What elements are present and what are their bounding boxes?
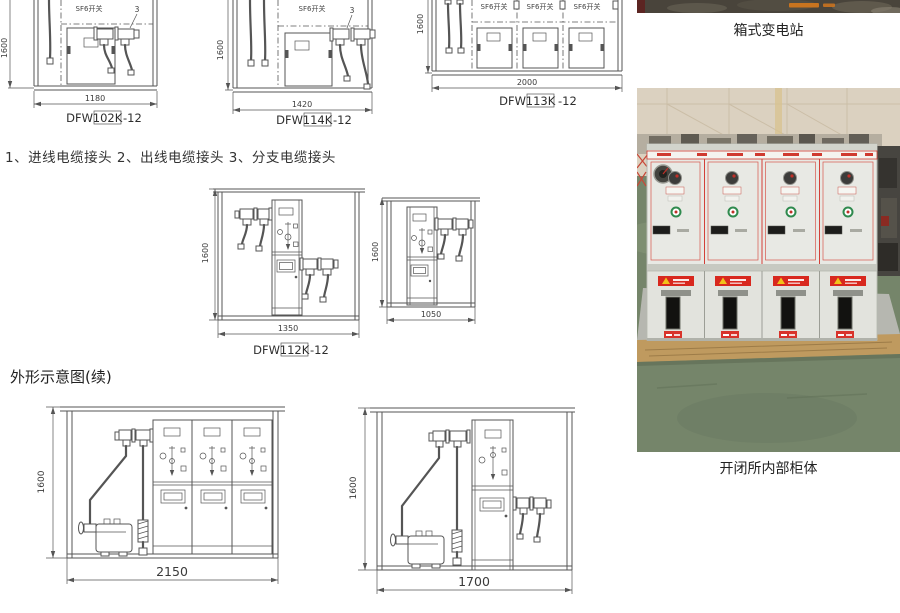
switch-unit <box>407 207 437 305</box>
height-dim-text: 1600 <box>416 14 425 34</box>
sf6-switch-label-3: SF6开关 <box>574 2 601 11</box>
switch-unit <box>472 420 513 570</box>
model-boxed: 113K <box>526 94 556 108</box>
height-dimension: 1600 <box>416 0 432 73</box>
drawing-dfw102k: 3 SF6开关 1600 1180 DFW 102K -12 <box>0 0 185 130</box>
cable-connectors-left <box>235 208 272 251</box>
pointer-label: 3 <box>135 5 140 14</box>
model-boxed: 112K <box>280 343 310 357</box>
photo-substation-bottom-edge <box>637 0 900 13</box>
unit-front-2 <box>200 428 227 509</box>
height-dimension: 1600 <box>201 189 218 320</box>
height-dimension: 1600 <box>0 0 34 88</box>
cable-connectors-right <box>300 258 338 302</box>
width-dimension: 1420 <box>233 92 372 114</box>
cabinet-outline <box>382 198 480 307</box>
cable-connectors-right <box>435 218 473 261</box>
drawing-1050-cabinet: 1600 1050 <box>372 190 490 335</box>
straight-cable-with-joint <box>452 447 462 565</box>
unit-front-1 <box>160 428 187 509</box>
height-dim-text: 1600 <box>201 243 210 263</box>
photo-maroon-edge <box>637 0 645 13</box>
model-boxed: 114K <box>303 113 333 127</box>
cable-incoming <box>248 0 268 66</box>
width-dimension: 2000 <box>432 75 622 92</box>
height-dim-text: 1600 <box>372 242 380 262</box>
model-suffix: -12 <box>333 113 352 127</box>
model-boxed: 102K <box>93 111 123 125</box>
width-dim-text: 2150 <box>156 564 188 579</box>
height-dimension: 1600 <box>37 407 67 558</box>
sf6-switch-label-1: SF6开关 <box>481 2 508 11</box>
cable-terminal-assembly <box>115 429 153 446</box>
pointer-leader <box>130 14 137 28</box>
photo-right-equipment <box>877 146 900 276</box>
main-photo-caption: 开闭所内部柜体 <box>637 458 900 478</box>
width-dimension: 1180 <box>34 91 157 108</box>
photo-cabinet-interior <box>637 88 900 452</box>
height-dimension: 1600 <box>372 198 387 307</box>
drawing-2150-cabinet: 1600 2150 <box>30 398 330 598</box>
cable-connectors <box>94 27 139 75</box>
cable-incoming <box>47 0 53 64</box>
width-dimension: 1700 <box>377 570 572 594</box>
model-prefix: DFW <box>253 343 280 357</box>
cable-incoming <box>445 0 464 53</box>
model-caption: DFW 102K -12 <box>66 111 142 125</box>
sf6-switch-label: SF6开关 <box>299 4 326 13</box>
model-caption: DFW 113K -12 <box>499 94 577 108</box>
straight-cable-with-joint <box>138 446 148 555</box>
sf6-switch-label: SF6开关 <box>76 4 103 13</box>
pointer-label: 3 <box>350 6 355 15</box>
model-suffix: -12 <box>558 94 577 108</box>
width-dimension: 2150 <box>67 558 278 584</box>
model-prefix: DFW <box>66 111 93 125</box>
sf6-switch-label-2: SF6开关 <box>527 2 554 11</box>
unit-front-3 <box>240 428 267 509</box>
width-dim-text: 1700 <box>458 574 490 589</box>
model-suffix: -12 <box>123 111 142 125</box>
drawing-dfw114k: 3 SF6开关 1600 1420 DFW 114K -12 <box>192 0 392 132</box>
drawing-dfw112k: 1600 1350 DFW 112K -12 <box>195 180 380 380</box>
switch-units <box>153 420 272 554</box>
drawing-1700-cabinet: 1600 1700 <box>340 398 625 610</box>
model-suffix: -12 <box>310 343 329 357</box>
photo-switchgear-cabinet <box>647 144 877 341</box>
section-title: 外形示意图(续) <box>10 366 112 387</box>
width-dimension: 1350 <box>218 320 359 338</box>
cable-connectors-right <box>513 497 551 542</box>
width-dimension: 1050 <box>387 307 475 324</box>
model-prefix: DFW <box>276 113 303 127</box>
bent-cable-to-transformer <box>79 446 127 534</box>
width-dim-text: 1180 <box>85 94 105 103</box>
height-dim-text: 1600 <box>349 476 359 499</box>
cable-legend-note: 1、进线电缆接头 2、出线电缆接头 3、分支电缆接头 <box>5 146 336 166</box>
cabinet-outline <box>213 189 365 320</box>
height-dim-text: 1600 <box>216 40 225 60</box>
width-dim-text: 2000 <box>517 78 537 87</box>
height-dimension: 1600 <box>349 408 377 570</box>
drawing-dfw113k: SF6开关 SF6开关 SF6开关 1600 2000 DFW <box>405 0 640 114</box>
inner-doors <box>477 28 604 68</box>
cable-terminal-assembly <box>429 430 470 447</box>
transformer-box <box>408 531 444 568</box>
width-dim-text: 1050 <box>421 310 441 319</box>
top-photo-caption: 箱式变电站 <box>637 20 900 40</box>
width-dim-text: 1350 <box>278 324 298 333</box>
switch-unit <box>272 200 302 315</box>
cabinet-outline <box>60 407 285 558</box>
width-dim-text: 1420 <box>292 100 312 109</box>
height-dimension: 1600 <box>216 0 233 90</box>
transformer-box <box>96 519 132 556</box>
inner-door <box>285 33 332 86</box>
watermark-marks <box>789 3 835 8</box>
model-prefix: DFW <box>499 94 526 108</box>
height-dim-text: 1600 <box>0 38 9 58</box>
model-caption: DFW 112K -12 <box>253 343 329 357</box>
height-dim-text: 1600 <box>37 470 47 493</box>
model-caption: DFW 114K -12 <box>276 113 352 127</box>
catalog-page: 3 SF6开关 1600 1180 DFW 102K -12 <box>0 0 900 613</box>
